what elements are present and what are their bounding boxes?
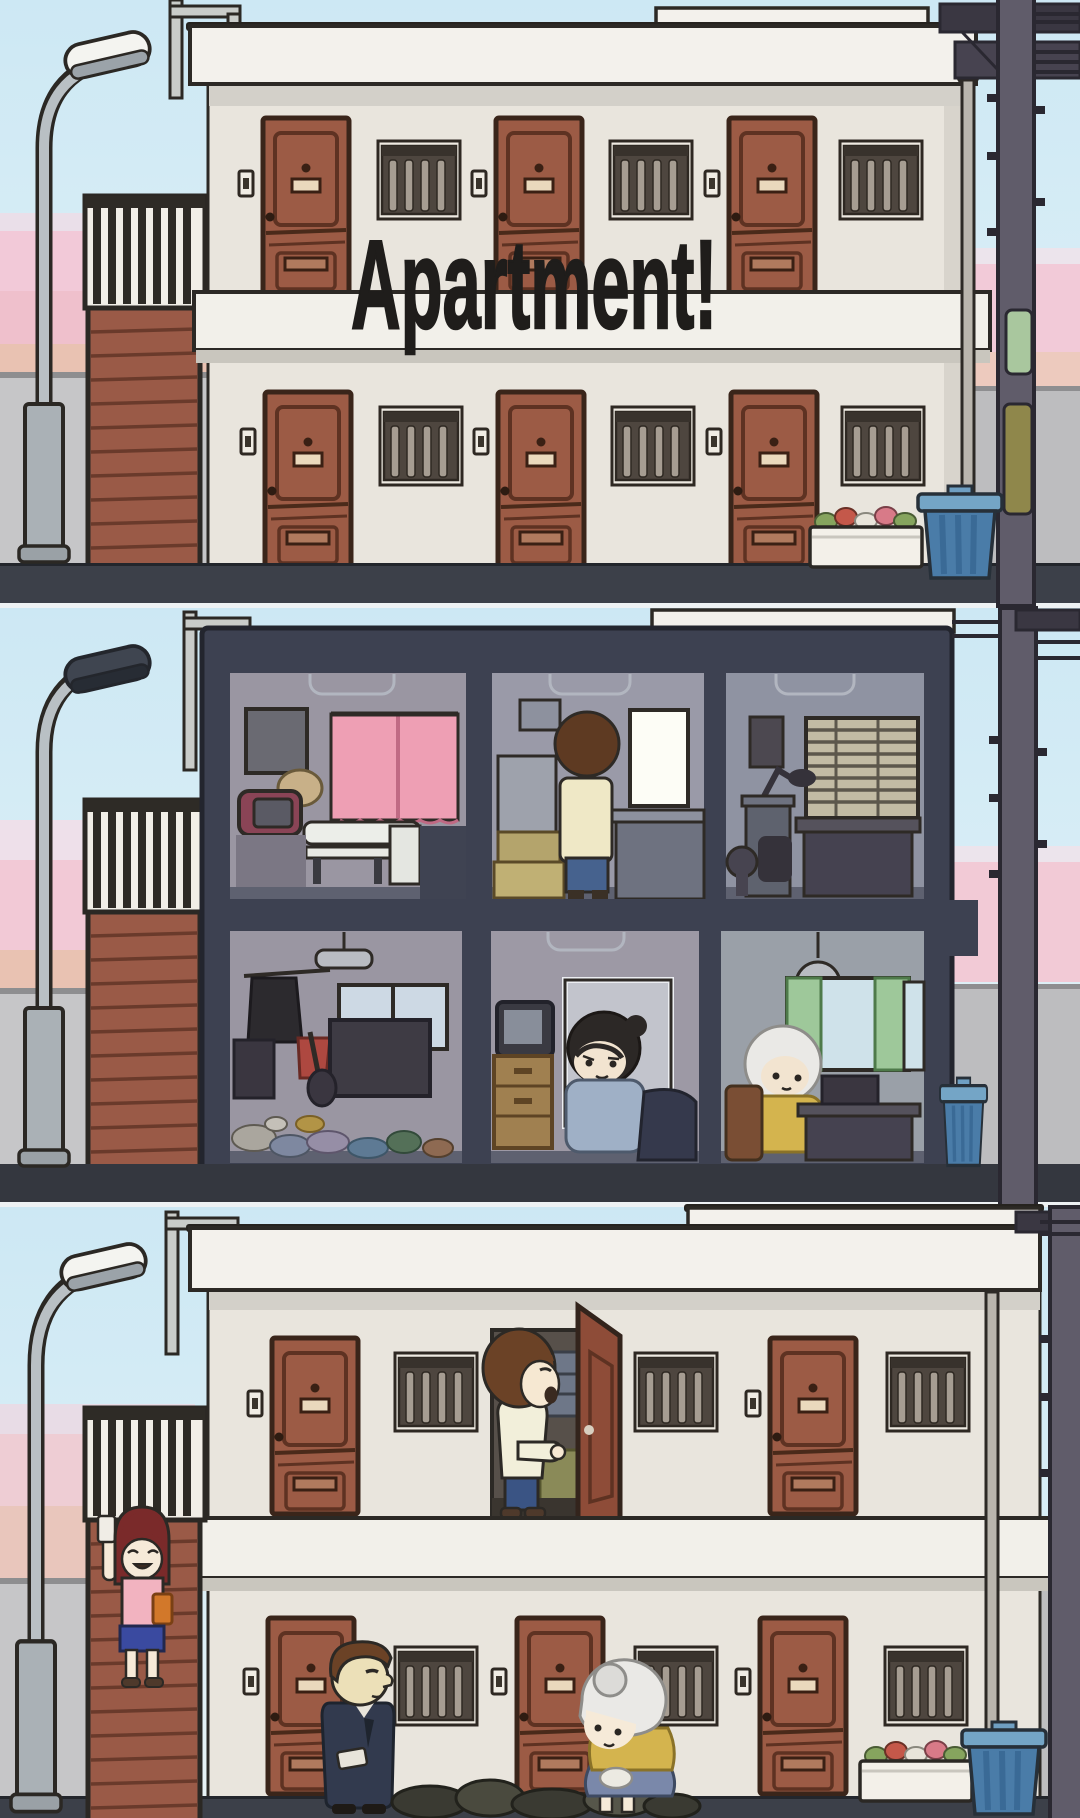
svg-text:Apartment!: Apartment! — [351, 214, 717, 356]
